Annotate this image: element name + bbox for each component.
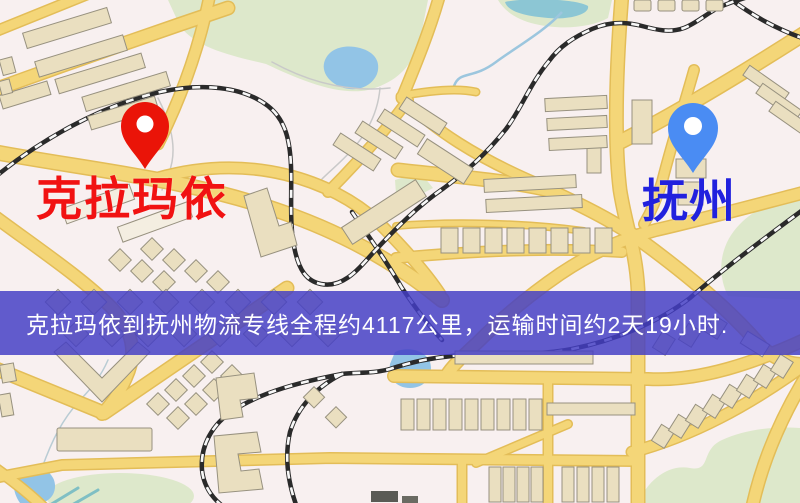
destination-city-label: 抚州 [642, 178, 736, 224]
origin-city-label: 克拉玛依 [36, 176, 228, 222]
route-info-banner: 克拉玛依到抚州物流专线全程约4117公里，运输时间约2天19小时. [0, 291, 800, 355]
route-info-text: 克拉玛依到抚州物流专线全程约4117公里，运输时间约2天19小时. [26, 306, 728, 340]
destination-pin-hole [684, 117, 702, 135]
map-canvas [0, 0, 800, 503]
logistics-route-map: 克拉玛依 抚州 克拉玛依到抚州物流专线全程约4117公里，运输时间约2天19小时… [0, 0, 800, 503]
origin-pin-hole [137, 116, 154, 133]
